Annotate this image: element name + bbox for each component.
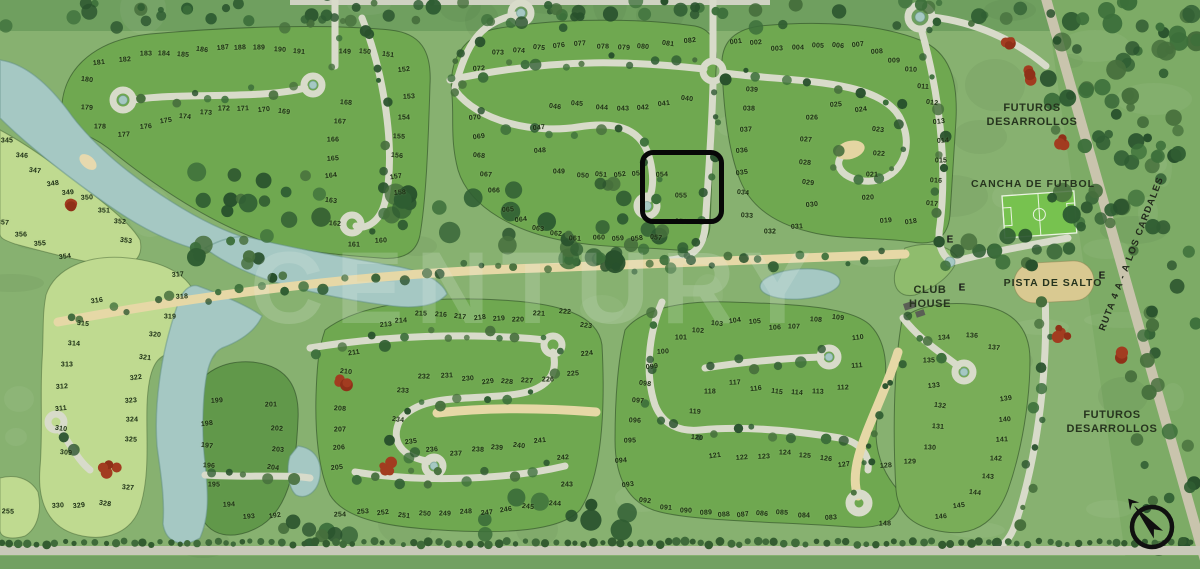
- watermark: CENTURY: [250, 230, 823, 347]
- label-futuros-desarrollos-top: FUTUROS DESARROLLOS: [962, 102, 1102, 130]
- outer-grass-bottom: [0, 556, 1200, 569]
- perimeter-road: [0, 546, 1200, 555]
- label-line: CLUB: [896, 284, 964, 298]
- label-line: DESARROLLOS: [1042, 423, 1182, 437]
- label-line: FUTUROS: [962, 102, 1102, 116]
- label-club-house: CLUB HOUSE: [896, 284, 964, 312]
- label-line: HOUSE: [896, 298, 964, 312]
- label-line: DESARROLLOS: [962, 116, 1102, 130]
- masterplan-map[interactable]: CENTURY FUTUROS DESARROLLOS CANCHA DE FU…: [0, 0, 1200, 569]
- label-pista-de-salto: PISTA DE SALTO: [983, 277, 1123, 290]
- compass-icon: [1117, 492, 1197, 569]
- label-cancha-de-futbol: CANCHA DE FUTBOL: [958, 178, 1108, 191]
- label-futuros-desarrollos-bottom: FUTUROS DESARROLLOS: [1042, 409, 1182, 437]
- highlighted-lot-outline[interactable]: [640, 150, 724, 224]
- label-line: FUTUROS: [1042, 409, 1182, 423]
